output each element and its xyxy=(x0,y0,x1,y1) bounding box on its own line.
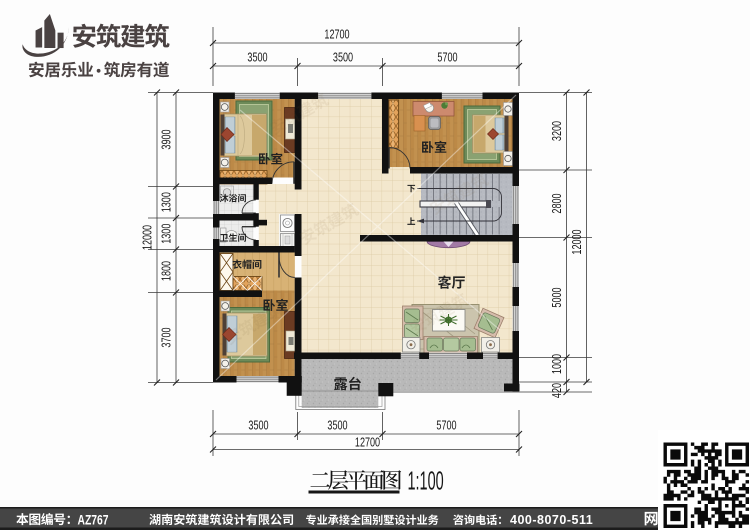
svg-text:12700: 12700 xyxy=(355,436,380,450)
svg-text:3500: 3500 xyxy=(247,51,267,65)
svg-text:3700: 3700 xyxy=(160,327,174,347)
svg-text:1000: 1000 xyxy=(551,354,565,374)
svg-text:5700: 5700 xyxy=(437,51,457,65)
svg-text:5000: 5000 xyxy=(551,287,565,307)
svg-text:2800: 2800 xyxy=(551,193,565,213)
svg-text:3500: 3500 xyxy=(333,51,353,65)
svg-text:5700: 5700 xyxy=(436,419,456,433)
svg-text:12700: 12700 xyxy=(324,28,349,42)
svg-text:1300: 1300 xyxy=(160,224,174,244)
svg-text:AZ767: AZ767 xyxy=(78,512,109,528)
svg-text:420: 420 xyxy=(551,383,565,398)
svg-text:1300: 1300 xyxy=(160,192,174,212)
svg-text:400-8070-511: 400-8070-511 xyxy=(510,513,593,527)
svg-text:3500: 3500 xyxy=(248,419,268,433)
svg-text:3900: 3900 xyxy=(160,129,174,149)
svg-text:12000: 12000 xyxy=(141,225,155,250)
svg-text:3200: 3200 xyxy=(551,121,565,141)
svg-text:1:100: 1:100 xyxy=(408,466,444,496)
svg-text:12000: 12000 xyxy=(571,229,585,254)
svg-text:3500: 3500 xyxy=(327,419,347,433)
svg-text:1800: 1800 xyxy=(160,261,174,281)
